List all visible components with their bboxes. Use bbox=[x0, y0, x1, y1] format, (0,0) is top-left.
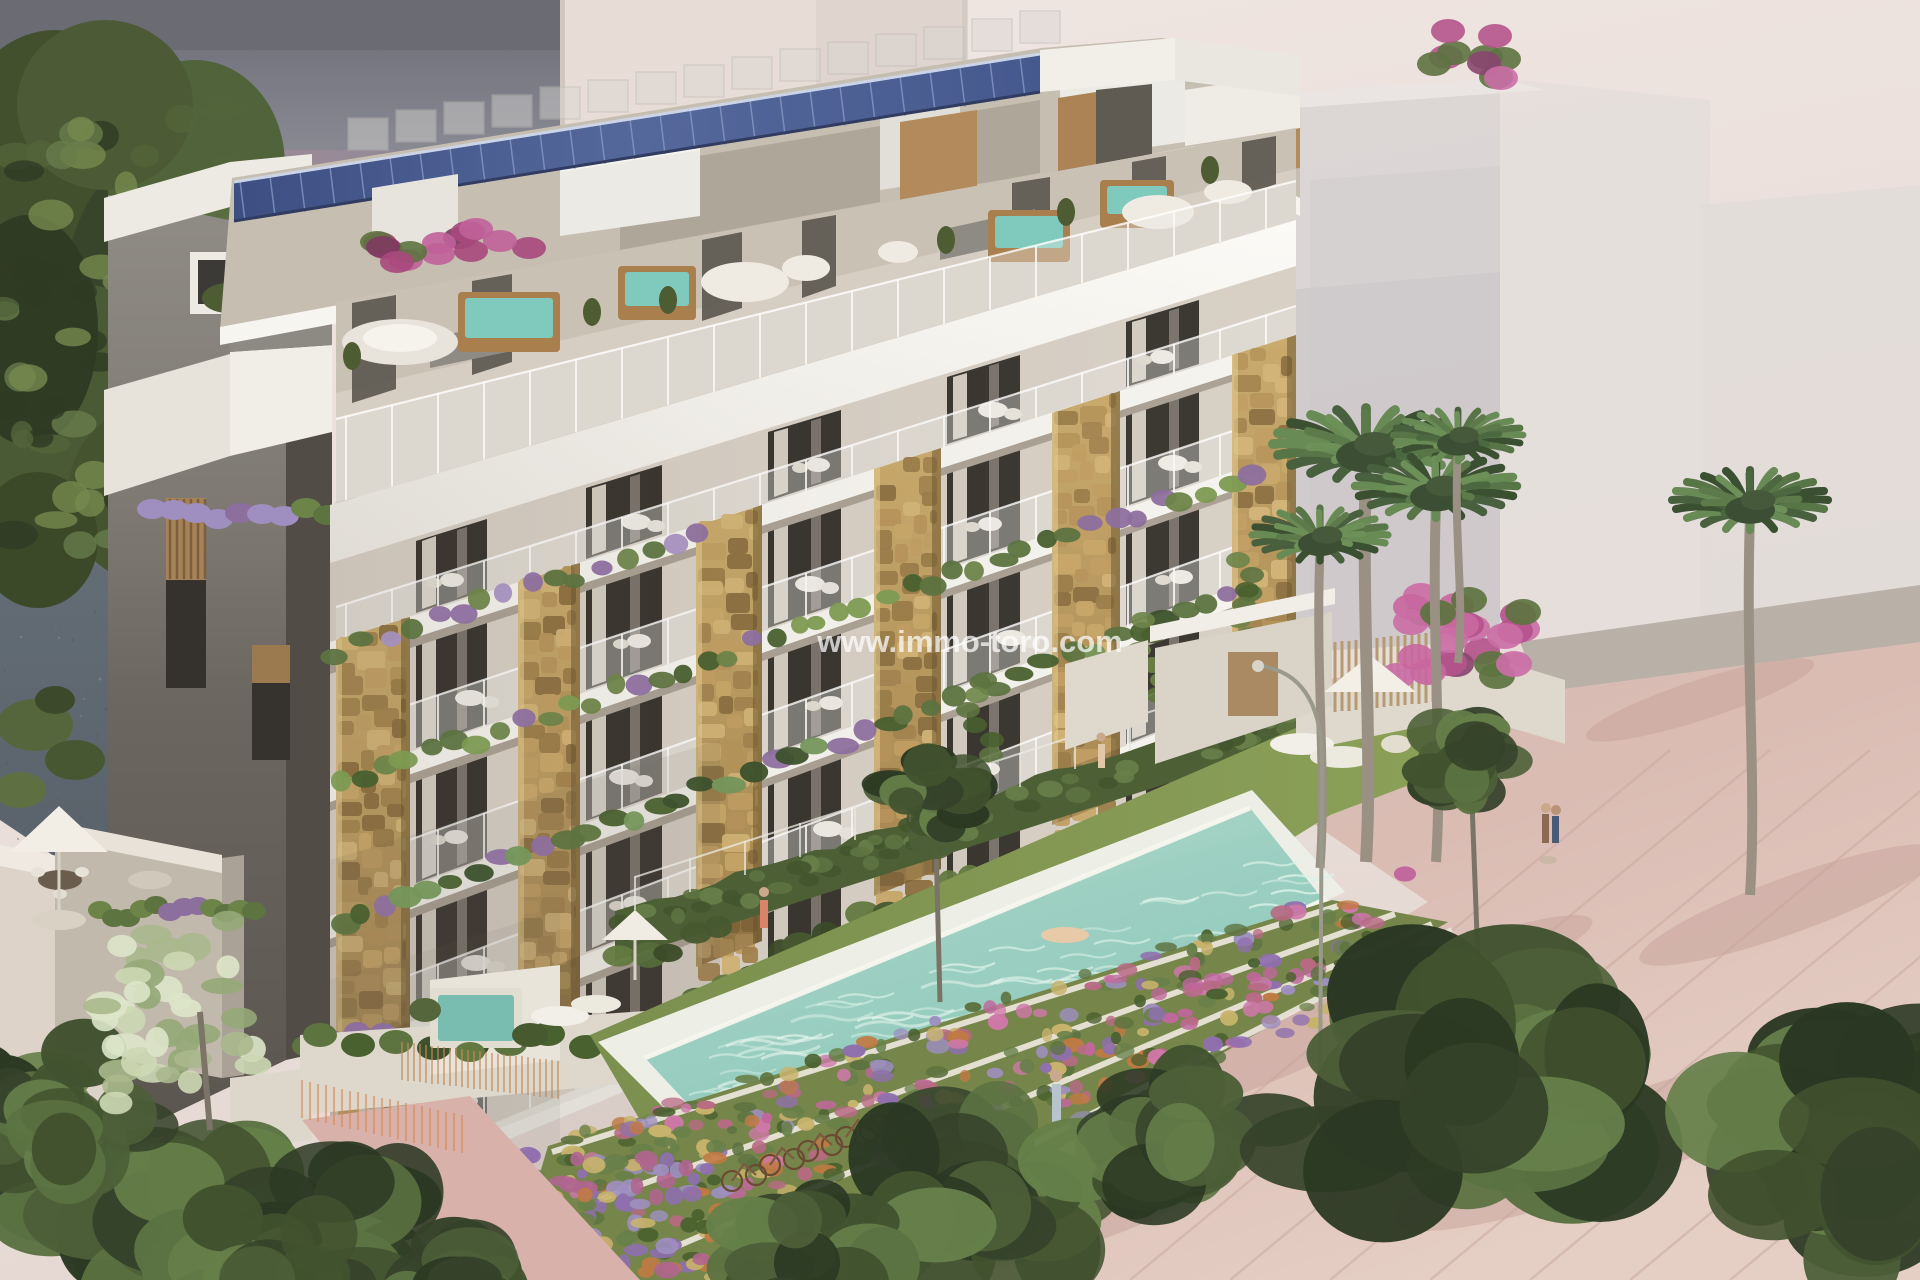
svg-text:www.immo-toro.com: www.immo-toro.com bbox=[816, 624, 1122, 659]
